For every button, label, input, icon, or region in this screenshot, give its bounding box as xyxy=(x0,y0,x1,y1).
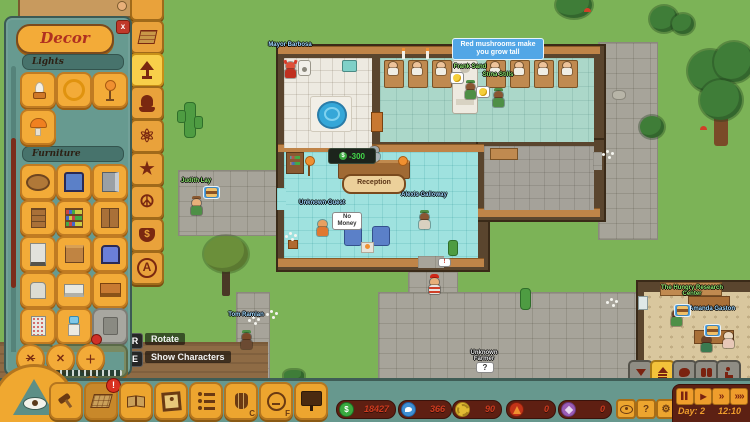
section-lights: Lights xyxy=(22,54,124,70)
water-cooler-icon xyxy=(68,316,80,336)
category-tab-research[interactable]: ⚛ xyxy=(130,119,164,153)
followers-icon xyxy=(401,402,416,417)
character-label-cultist-b: Stina Stills xyxy=(475,72,521,78)
red-mushroom xyxy=(584,8,591,12)
cactus-arm xyxy=(194,116,203,129)
peace-icon: ☮ xyxy=(139,192,154,212)
restaurant-character[interactable] xyxy=(700,336,713,352)
furniture-item-locked[interactable] xyxy=(92,308,128,344)
wall-face-south xyxy=(278,258,484,267)
east-door xyxy=(593,152,602,170)
character-mayor[interactable] xyxy=(284,62,297,78)
armchair-icon xyxy=(64,172,84,192)
panel-title: Decor xyxy=(16,24,114,54)
fervour-value: 0 xyxy=(544,404,549,414)
hungry-bubble xyxy=(704,324,721,337)
smiley-icon xyxy=(453,74,461,82)
sauna-guest[interactable] xyxy=(435,62,447,75)
play-icon: ▶ xyxy=(700,392,705,401)
pharaoh-icon xyxy=(235,393,248,409)
floor-lamp xyxy=(305,156,315,166)
question-bubble: ? xyxy=(476,362,494,373)
smiley-icon xyxy=(479,88,487,96)
remove-icon: ✕ xyxy=(56,352,65,365)
eye-button-icon xyxy=(620,405,633,414)
signboard-icon xyxy=(301,391,322,411)
fervour-counter: 0 xyxy=(506,400,556,419)
list-icon xyxy=(198,392,215,410)
candle-lamp-icon xyxy=(33,82,44,99)
tasks-button[interactable] xyxy=(189,382,223,420)
character-guest[interactable] xyxy=(316,220,329,236)
spirit-value: 0 xyxy=(600,404,605,414)
speech-bubble-no-money: No Money xyxy=(332,212,362,230)
crm-letter: C xyxy=(249,409,255,418)
decor-button[interactable] xyxy=(154,382,188,420)
side-table xyxy=(361,242,374,253)
cactus-small xyxy=(520,288,531,310)
wardrobe-icon xyxy=(101,208,119,228)
day-label: Day: 2 xyxy=(678,406,705,416)
furniture-item-wardrobe[interactable] xyxy=(92,200,128,236)
light-item-floor-lamp[interactable] xyxy=(92,72,128,108)
light-item-candle-lamp[interactable] xyxy=(20,72,56,108)
eye-pupil xyxy=(32,400,38,406)
fastest-button[interactable]: »» xyxy=(730,388,748,405)
big-tree-canopy xyxy=(714,42,750,82)
coffee-table-icon xyxy=(64,284,84,297)
character-label-guest: Unknown Guest xyxy=(299,200,345,206)
bathtub xyxy=(317,101,347,129)
wall-candle xyxy=(426,48,429,59)
plus-icon: ＋ xyxy=(85,351,96,367)
horn xyxy=(293,60,297,65)
rock xyxy=(612,90,626,100)
drink-icon xyxy=(636,369,646,376)
bush xyxy=(672,14,694,34)
star-icon: ★ xyxy=(139,159,154,179)
round-table-icon xyxy=(26,174,50,191)
furniture-item-vending-machine[interactable] xyxy=(20,308,56,344)
followers-counter: 366 xyxy=(398,400,452,419)
floors-icon xyxy=(137,30,157,44)
wall-face-north xyxy=(278,46,600,54)
money-icon: $ xyxy=(339,402,354,417)
west-door xyxy=(277,188,286,210)
floor-lamp xyxy=(398,156,408,166)
vending-machine-icon xyxy=(31,316,46,336)
scrollbar-thumb[interactable] xyxy=(11,138,16,288)
furniture-item-sideboard[interactable] xyxy=(92,272,128,308)
furniture-item-round-table[interactable] xyxy=(20,164,56,200)
money-bag-icon: $ xyxy=(139,228,155,242)
show-characters-hint-label: Show Characters xyxy=(145,351,231,363)
lamp-icon xyxy=(140,61,154,79)
build-button[interactable] xyxy=(49,382,83,420)
time-label: 12:10 xyxy=(718,406,741,416)
flowers xyxy=(270,310,273,313)
ceiling-lamp-icon xyxy=(63,79,85,101)
stomach-icon xyxy=(679,368,690,377)
furniture-item-fridge[interactable] xyxy=(20,236,56,272)
flowers xyxy=(610,298,613,301)
sitting-person-icon xyxy=(724,367,734,378)
decor-panel: x Decor Lights Furniture ✕ ✕ ＋ xyxy=(4,16,132,376)
light-item-mushroom-lamp[interactable] xyxy=(20,109,56,145)
stone-apron-right xyxy=(598,42,658,240)
big-tree-canopy xyxy=(700,80,742,120)
burger-icon xyxy=(707,326,718,335)
gear-icon: ⚙ xyxy=(662,404,671,415)
restaurant-window xyxy=(638,296,648,310)
wall-candle xyxy=(402,48,405,59)
furniture-item-dresser[interactable] xyxy=(56,236,92,272)
cash-register-sign: $ -300 xyxy=(328,148,376,164)
character-label-alexis: Alexis Galloway xyxy=(401,192,447,198)
lungs-icon xyxy=(701,368,712,377)
rooms-button[interactable]: ! xyxy=(84,382,118,420)
tree-trunk xyxy=(222,268,230,296)
hungry-bubble xyxy=(674,304,691,317)
cactus-arm xyxy=(177,110,186,123)
sauna-guest[interactable] xyxy=(561,62,573,75)
character-label-mayor: Mayor Barbosa xyxy=(267,42,313,48)
mannequin xyxy=(118,2,126,10)
mushroom-lamp-icon xyxy=(30,118,47,136)
big-tree-trunk xyxy=(714,116,728,146)
hungry-bubble xyxy=(203,186,220,199)
blue-chair-icon xyxy=(101,245,120,264)
character-label-tom: Tom Ramlan xyxy=(223,312,269,318)
cactus-pot xyxy=(448,240,458,256)
influence-counter: 90 xyxy=(452,400,502,419)
category-tab-partial[interactable] xyxy=(130,0,164,21)
rightwing-shelf xyxy=(490,148,518,160)
faith-letter: F xyxy=(285,409,290,418)
character-judith[interactable] xyxy=(190,196,203,215)
coin-icon: $ xyxy=(339,152,347,160)
bathroom-sauna-door xyxy=(371,112,383,132)
waiting-chair xyxy=(372,226,390,246)
rotate-hint-label: Rotate xyxy=(145,333,185,345)
character-label-judith: Judith Lay xyxy=(173,178,219,184)
sink xyxy=(342,60,357,72)
character-label-cultist-a: Frank Sand xyxy=(447,64,493,70)
cultists-roster-button[interactable]: C xyxy=(224,382,258,420)
section-furniture: Furniture xyxy=(22,146,124,162)
character-alexis[interactable] xyxy=(418,210,431,229)
faith-button[interactable]: F xyxy=(259,382,293,420)
flowers xyxy=(606,150,609,153)
blueprint-icon xyxy=(90,394,113,408)
sauna-guest[interactable] xyxy=(537,62,549,75)
sideboard-icon xyxy=(100,283,121,297)
picture-frame-icon xyxy=(161,391,182,412)
duplicate-item-button[interactable]: ＋ xyxy=(76,344,105,373)
character-label-farmer: Unknown Farmer xyxy=(461,350,507,362)
bookshelf-icon xyxy=(65,208,83,228)
floor-lamp-icon xyxy=(105,80,116,101)
furniture-item-locker[interactable] xyxy=(92,164,128,200)
bottle-cabinet xyxy=(286,152,304,174)
up-arrow-icon xyxy=(658,367,668,379)
hammer-icon xyxy=(55,390,77,412)
view-button[interactable] xyxy=(616,399,636,419)
category-tab-finances[interactable]: $ xyxy=(130,218,164,252)
followers-value: 366 xyxy=(430,404,445,414)
close-button[interactable]: x xyxy=(116,20,130,34)
help-glyph: ? xyxy=(643,404,649,415)
furniture-item-blue-chair[interactable] xyxy=(92,236,128,272)
fastest-forward-icon: »» xyxy=(734,391,743,402)
signboard-button[interactable] xyxy=(294,382,328,420)
category-tab-peace[interactable]: ☮ xyxy=(130,185,164,219)
furniture-item-white-chair[interactable] xyxy=(20,272,56,308)
locked-item-icon xyxy=(103,317,118,335)
game-screen: $ -300 Reception xyxy=(0,0,750,422)
olive-tree-canopy xyxy=(204,236,248,272)
category-tab-anarchy[interactable]: A xyxy=(130,251,164,285)
spirit-icon xyxy=(561,402,576,417)
restaurant-label: The Hungry Research Center xyxy=(652,285,732,297)
white-chair-icon xyxy=(30,282,46,299)
character-label-amanda: Amanda Gaston xyxy=(689,306,735,312)
furniture-item-water-cooler[interactable] xyxy=(56,308,92,344)
character-cultist-b[interactable] xyxy=(492,88,505,107)
reception-sign: Reception xyxy=(342,174,406,194)
anarchy-icon: A xyxy=(137,258,157,278)
spirit-counter: 0 xyxy=(558,400,612,419)
burger-icon xyxy=(677,306,688,315)
fast-forward-icon: » xyxy=(719,391,724,402)
catalog-button[interactable] xyxy=(119,382,153,420)
book-icon xyxy=(127,396,145,407)
character-tom[interactable] xyxy=(240,330,253,349)
furniture-item-bookshelf[interactable] xyxy=(56,200,92,236)
category-tab-decor[interactable] xyxy=(130,53,164,87)
furniture-item-drawers[interactable] xyxy=(20,200,56,236)
register-amount: -300 xyxy=(349,152,365,161)
speech-bubble-mushrooms: Red mushrooms make you grow tall xyxy=(452,38,544,60)
character-porter[interactable] xyxy=(428,274,441,294)
toilet xyxy=(298,60,311,76)
fridge-icon xyxy=(30,243,46,266)
smiley-bubble xyxy=(476,86,490,98)
smiley-bubble xyxy=(450,72,464,84)
alert-bubble: ! xyxy=(438,258,451,267)
pause-button[interactable]: ▌▌ xyxy=(676,388,694,405)
category-tab-favors[interactable]: ★ xyxy=(130,152,164,186)
hooded-figure-icon xyxy=(139,95,155,112)
category-tab-floors[interactable] xyxy=(130,20,164,54)
flame-icon xyxy=(509,402,524,417)
money-counter: $18427 xyxy=(336,400,396,419)
influence-value: 90 xyxy=(485,404,495,414)
play-button[interactable]: ▶ xyxy=(694,388,712,405)
flowers xyxy=(289,232,292,235)
burger-icon xyxy=(206,188,217,197)
plant-pot xyxy=(288,240,298,249)
sauna-guest[interactable] xyxy=(411,62,423,75)
dresser-icon xyxy=(65,245,84,263)
furniture-item-armchair[interactable] xyxy=(56,164,92,200)
drawers-icon xyxy=(31,208,46,228)
influence-icon xyxy=(455,402,470,417)
category-tab-cultists[interactable] xyxy=(130,86,164,120)
red-mushroom xyxy=(700,126,707,130)
bush xyxy=(640,116,664,138)
furniture-item-coffee-table[interactable] xyxy=(56,272,92,308)
face-icon xyxy=(267,392,286,411)
money-value: 18427 xyxy=(364,404,389,414)
fast-button[interactable]: » xyxy=(712,388,730,405)
atom-icon: ⚛ xyxy=(139,126,155,147)
help-button[interactable]: ? xyxy=(636,399,656,419)
light-item-ceiling-lamp[interactable] xyxy=(56,72,92,108)
pause-icon: ▌▌ xyxy=(681,393,689,400)
sauna-guest[interactable] xyxy=(387,62,399,75)
restaurant-character-pale[interactable] xyxy=(722,332,735,348)
locker-icon xyxy=(102,172,119,192)
